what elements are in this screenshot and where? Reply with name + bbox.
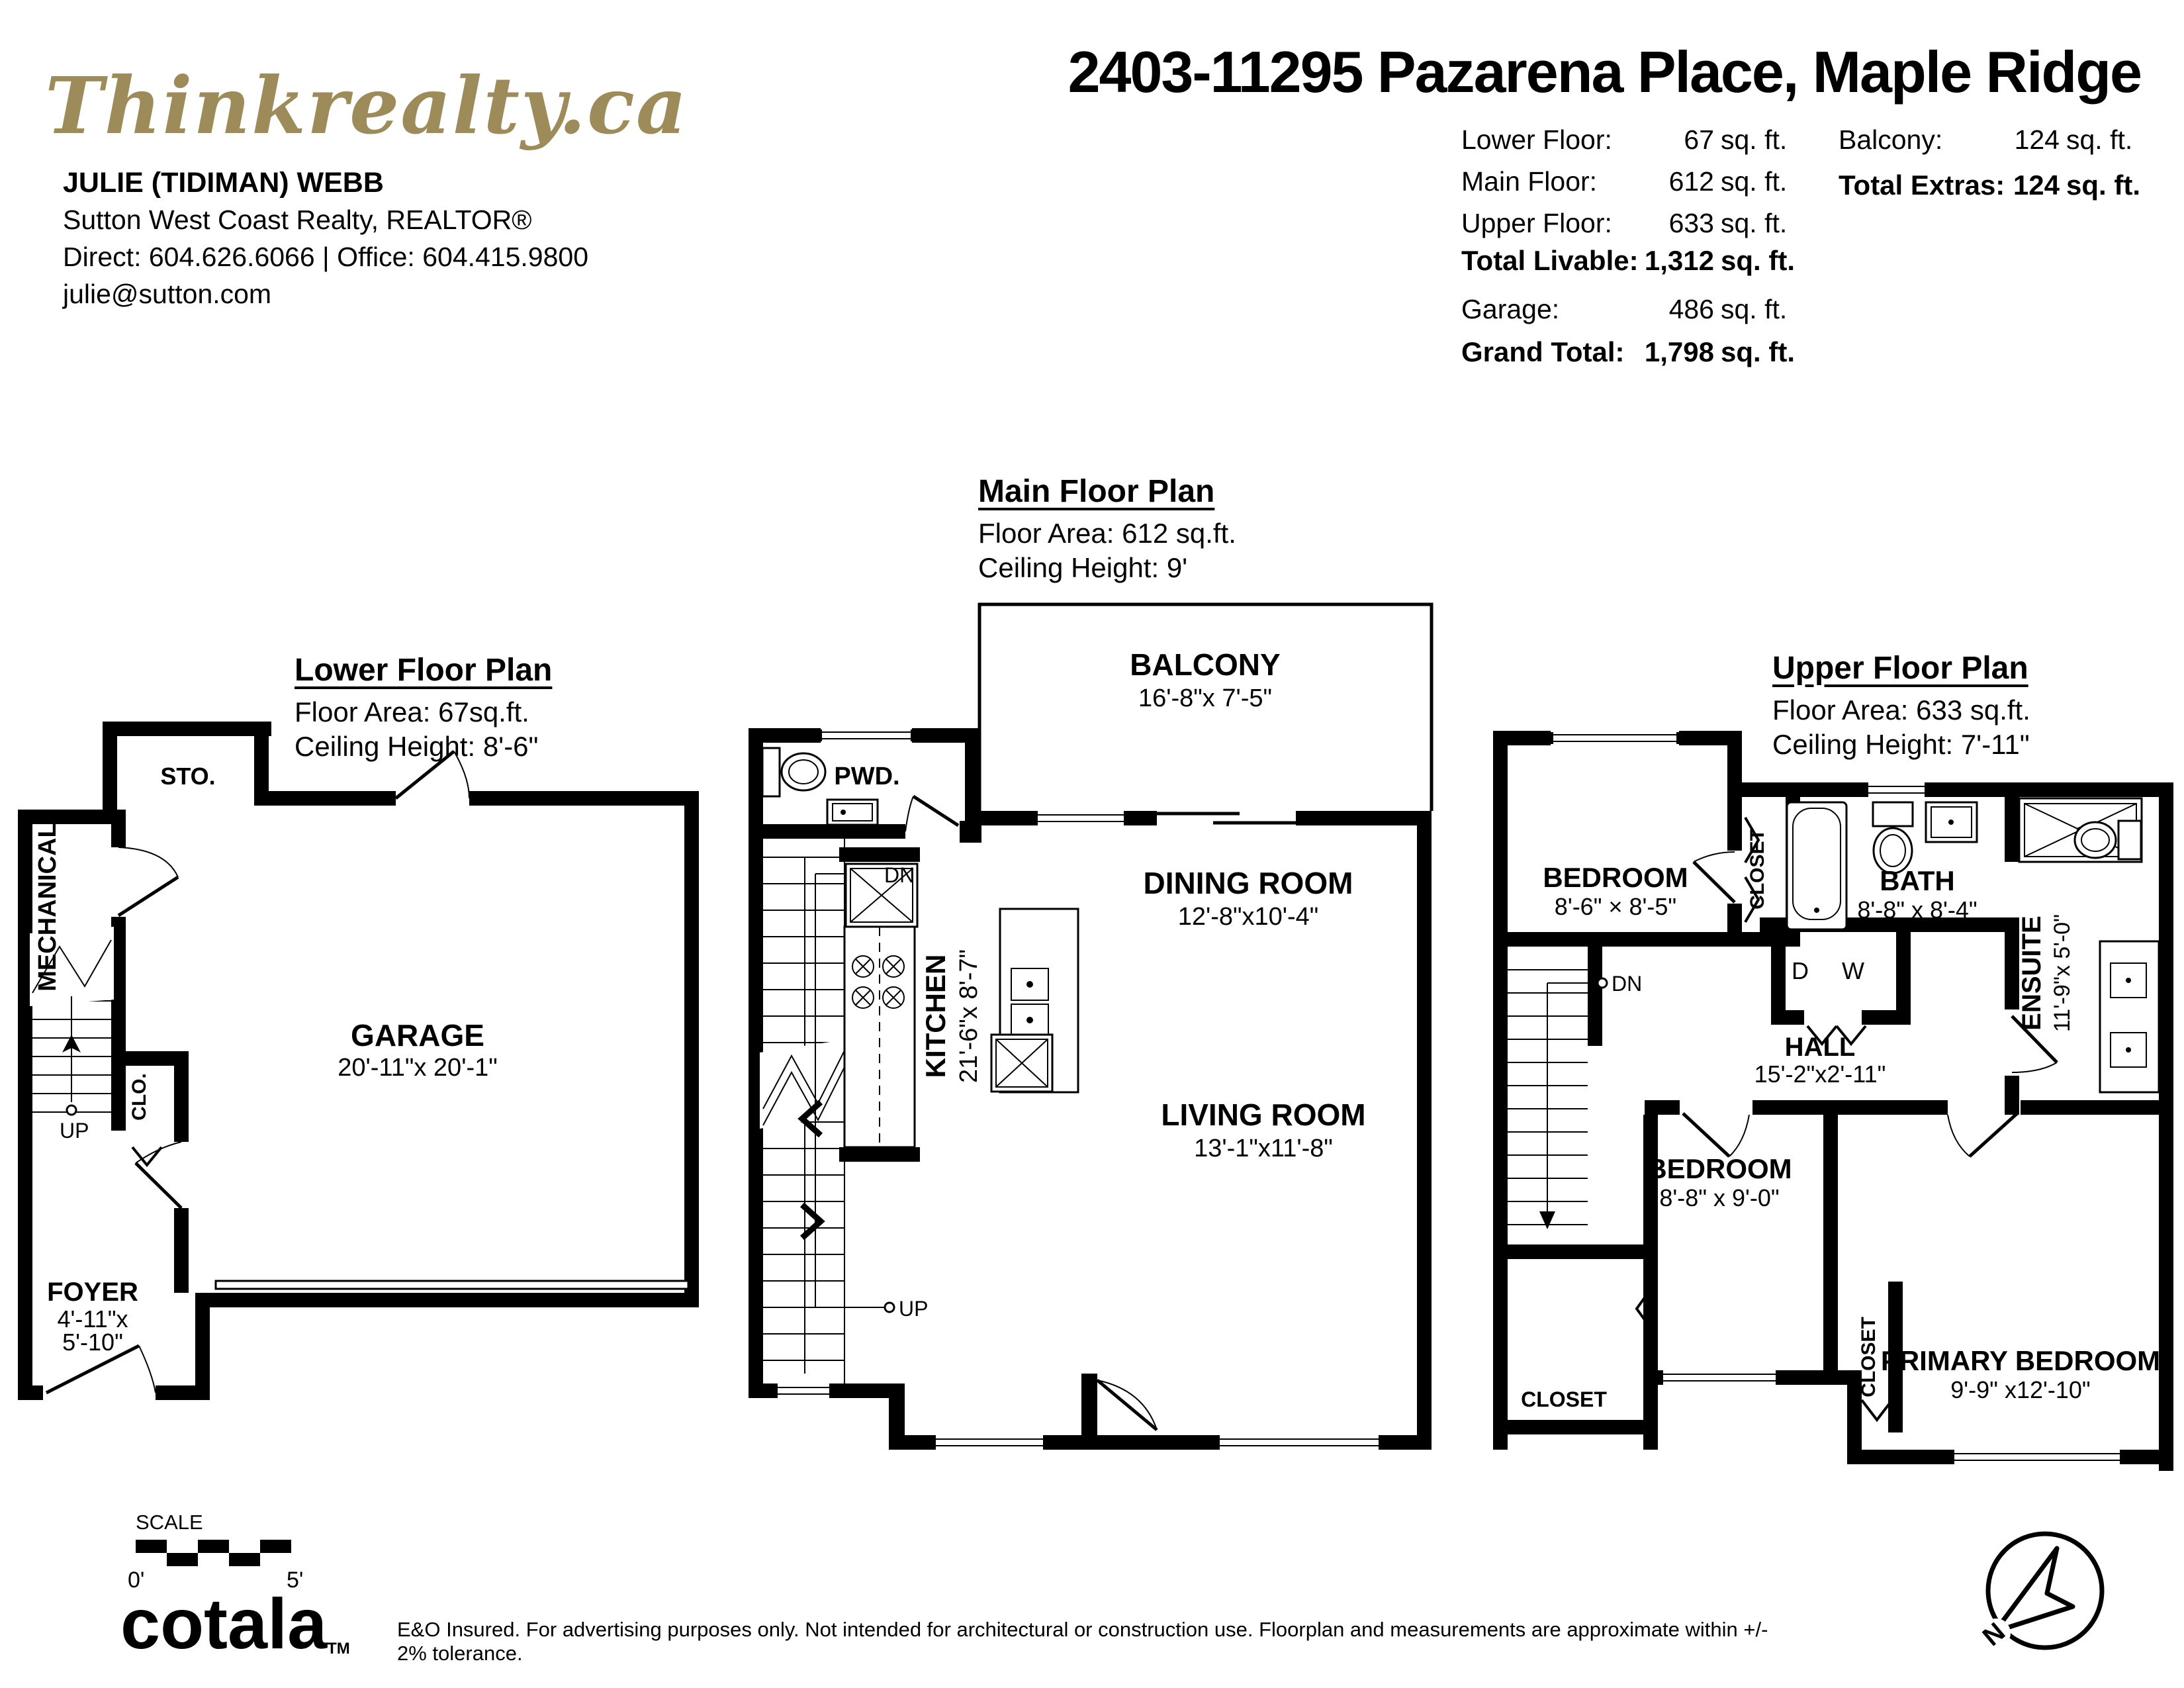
summary-row: Main Floor: 612 sq. ft. [1461, 166, 1792, 197]
upper-floor-plan-drawing: BEDROOM 8'-6" × 8'-5" CLOSET BATH 8'-8" … [1491, 718, 2173, 1486]
stairs-up-label: UP [60, 1119, 89, 1143]
main-floor-plan-drawing: PWD. BALCONY 16'-8"x 7'-5" DN UP KITCHEN… [747, 592, 1435, 1453]
room-label-hall: HALL [1785, 1033, 1856, 1062]
room-dims-living: 13'-1"x11'-8" [1194, 1135, 1333, 1162]
room-label-garage: GARAGE [351, 1018, 484, 1053]
page-title: 2403-11295 Pazarena Place, Maple Ridge [880, 38, 2141, 106]
summary-row: Lower Floor: 67 sq. ft. [1461, 124, 1792, 156]
agent-name: JULIE (TIDIMAN) WEBB [63, 164, 725, 201]
room-label-sto: STO. [160, 763, 215, 790]
room-dims-dining: 12'-8"x10'-4" [1178, 903, 1319, 931]
room-label-closet2: CLOSET [1521, 1387, 1607, 1411]
room-dims-bedroom1: 8'-6" × 8'-5" [1555, 893, 1676, 920]
tm-mark: TM [327, 1640, 350, 1658]
garage-door [216, 1281, 688, 1289]
room-label-ensuite: ENSUITE [2017, 915, 2046, 1030]
room-label-bath: BATH [1880, 865, 1955, 896]
summary-row-total-livable: Total Livable: 1,312 sq. ft. [1461, 245, 1792, 277]
lower-floor-plan-drawing: STO. MECHANICAL GARAGE 20'-11"x 20'-1" C… [7, 718, 702, 1423]
room-dims-primary: 9'-9" x12'-10" [1950, 1376, 2090, 1403]
summary-row-grand-total: Grand Total: 1,798 sq. ft. [1461, 336, 1792, 368]
scale-label: SCALE [136, 1511, 347, 1534]
room-dims-kitchen: 21'-6"x 8'-7" [955, 949, 983, 1083]
summary-row: Garage: 486 sq. ft. [1461, 294, 1792, 325]
room-dims-hall: 15'-2"x2'-11" [1754, 1060, 1886, 1088]
room-label-closet1: CLOSET [1747, 829, 1768, 910]
scale-indicator: SCALE 0' 5' [136, 1511, 347, 1568]
cotala-logo: cotalaTM [120, 1582, 350, 1665]
room-dims-ensuite: 11'-9"x 5'-0" [2050, 914, 2075, 1032]
room-label-closet3: CLOSET [1858, 1317, 1880, 1397]
summary-row: Upper Floor: 633 sq. ft. [1461, 208, 1792, 239]
appliance-label-dryer: D [1792, 957, 1809, 984]
north-arrow-icon: N [1972, 1519, 2118, 1665]
room-label-bedroom2: BEDROOM [1647, 1153, 1792, 1184]
appliance-label-washer: W [1842, 957, 1864, 984]
agent-info: JULIE (TIDIMAN) WEBB Sutton West Coast R… [63, 164, 725, 312]
room-label-dining: DINING ROOM [1144, 866, 1353, 900]
disclaimer-text: E&O Insured. For advertising purposes on… [397, 1618, 1787, 1665]
room-label-foyer: FOYER [47, 1278, 138, 1307]
room-label-pwd: PWD. [834, 763, 899, 790]
stairs-dn-label: DN [884, 863, 915, 887]
agent-phones: Direct: 604.626.6066 | Office: 604.415.9… [63, 238, 725, 275]
scale-bar [136, 1540, 291, 1566]
room-label-clo: CLO. [128, 1073, 150, 1121]
main-walls [749, 728, 1432, 1450]
floorplan-page: Thinkrealty.ca JULIE (TIDIMAN) WEBB Sutt… [0, 0, 2184, 1688]
room-dims-bedroom2: 8'-8" x 9'-0" [1659, 1184, 1779, 1211]
main-plan-header: Main Floor Plan Floor Area: 612 sq.ft. C… [978, 473, 1236, 585]
summary-row-balcony: Balcony: 124 sq. ft. [1839, 124, 2138, 156]
room-label-bedroom1: BEDROOM [1543, 862, 1688, 893]
stairs-up-label: UP [899, 1297, 928, 1321]
stairs-dn-label: DN [1612, 972, 1642, 996]
agent-email: julie@sutton.com [63, 275, 725, 312]
room-label-balcony: BALCONY [1130, 647, 1280, 682]
room-label-mechanical: MECHANICAL [34, 822, 62, 991]
room-label-kitchen: KITCHEN [920, 955, 951, 1078]
summary-row-total-extras: Total Extras: 124 sq. ft. [1839, 169, 2138, 201]
room-dims-bath: 8'-8" x 8'-4" [1857, 896, 1977, 923]
room-dims-foyer-2: 5'-10" [62, 1329, 123, 1356]
thinkrealty-logo: Thinkrealty.ca [45, 36, 601, 175]
main-doors [905, 796, 1157, 1430]
room-dims-garage: 20'-11"x 20'-1" [338, 1054, 497, 1082]
room-dims-balcony: 16'-8"x 7'-5" [1138, 684, 1272, 712]
room-label-living: LIVING ROOM [1161, 1098, 1365, 1132]
room-label-primary: PRIMARY BEDROOM [1881, 1345, 2160, 1376]
agent-brokerage: Sutton West Coast Realty, REALTOR® [63, 201, 725, 238]
